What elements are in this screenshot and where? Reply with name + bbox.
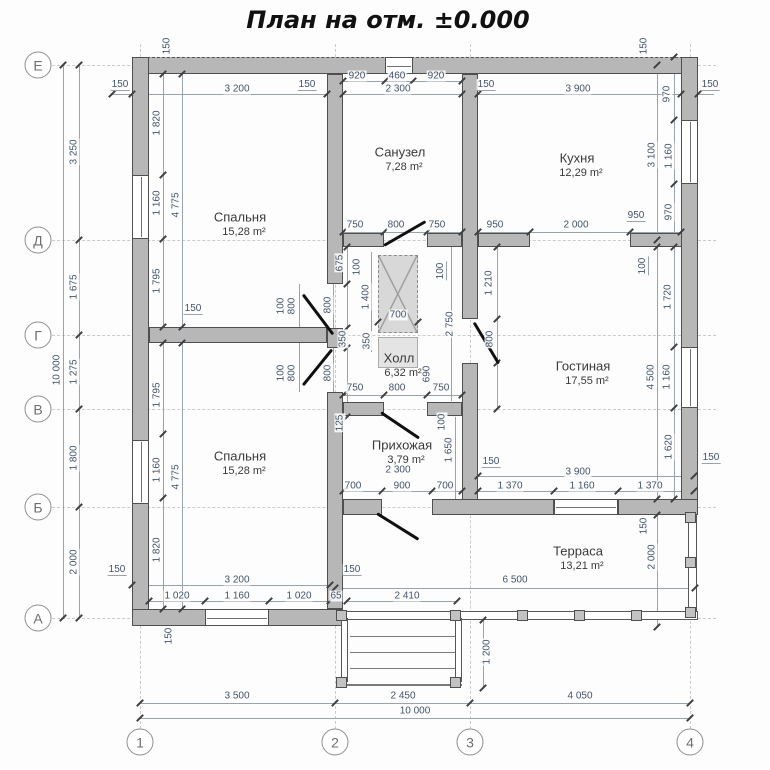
dimension-label: 1 620 [664,433,675,460]
dimension-label: 800 [287,364,298,383]
dimension-label: 4 050 [566,691,593,702]
dimension-label: 700 [344,481,363,492]
dimension-label: 950 [486,220,505,231]
dimension-line [497,247,498,409]
axis-marker-row: А [25,605,52,632]
dimension-label: 2 000 [69,548,80,575]
dimension-label: 150 [162,37,173,56]
dimension-label: 2 300 [384,84,411,95]
axis-marker-row: Г [25,322,52,349]
room-area: 7,28 m² [385,161,422,173]
dimension-label: 1 650 [444,436,455,463]
dimension-tick [479,684,487,692]
railing-post [685,607,696,618]
stair-tread [350,652,455,653]
dimension-label: 800 [323,364,334,383]
dimension-label: 1 795 [152,381,163,408]
wall [432,499,554,515]
stair-hatch [378,255,418,333]
room-name: Спальня [214,210,266,225]
room-name: Терраса [553,544,603,559]
dimension-line [657,247,658,499]
room-area: 3,79 m² [387,454,424,466]
railing-post [631,610,642,621]
axis-marker-col: 1 [127,729,154,756]
dimension-label: 2 750 [445,310,456,337]
dimension-label: 920 [427,71,446,82]
room-name: Санузел [375,145,426,160]
railing-post [685,512,696,523]
room-area: 6,32 m² [384,367,421,379]
dimension-label: 65 [329,591,342,602]
axis-marker-row: Е [25,52,52,79]
dimension-label: 10 000 [399,706,432,717]
dimension-label: 150 [702,452,721,464]
dimension-label: 2 450 [389,691,416,702]
wall [132,57,698,74]
room-area: 15,28 m² [222,226,265,238]
dimension-label: 150 [477,79,496,91]
dimension-label: 800 [387,220,406,231]
wall [149,327,327,343]
wall [462,74,478,319]
railing-post [450,610,461,621]
dimension-label: 750 [346,383,365,394]
dimension-label: 125 [335,414,346,433]
plan-title: План на отм. ±0.000 [246,6,529,34]
dimension-label: 750 [432,383,451,394]
dimension-line [455,417,456,499]
room-area: 15,28 m² [222,465,265,477]
dimension-label: 100 [276,297,287,316]
wall [327,74,343,284]
railing-post [336,610,347,621]
dimension-label: 1 160 [223,591,250,602]
dimension-label: 1 400 [361,283,372,310]
dimension-label: 150 [108,564,127,576]
dimension-label: 1 275 [69,358,80,385]
dimension-label: 3 100 [647,141,658,168]
dimension-label: 1 820 [152,109,163,136]
door-leaf [376,512,419,541]
dimension-line [343,395,462,396]
railing-post [685,557,696,568]
dimension-label: 1 795 [152,267,163,294]
dimension-label: 1 160 [662,363,673,390]
dimension-label: 1 800 [69,444,80,471]
room-name: Холл [384,351,415,366]
room-name: Прихожая [372,438,432,453]
dimension-line [335,588,695,589]
dimension-label: 150 [639,517,650,536]
dimension-label: 4 775 [171,463,182,490]
dimension-label: 3 900 [564,467,591,478]
terrace-railing [341,618,348,682]
dimension-label: 10 000 [52,354,63,387]
dimension-label: 1 160 [664,142,675,169]
dimension-line [140,703,690,704]
dimension-label: 970 [662,85,673,104]
dimension-label: 150 [164,627,175,646]
dimension-label: 1 720 [663,283,674,310]
axis-marker-col: 3 [457,729,484,756]
dimension-label: 3 500 [223,691,250,702]
dimension-label: 1 210 [484,269,495,296]
dimension-label: 1 370 [496,481,523,492]
dimension-label: 750 [428,220,447,231]
window [681,347,698,408]
dimension-label: 800 [323,296,334,315]
room-area: 17,55 m² [565,375,608,387]
dimension-label: 800 [388,383,407,394]
dimension-label: 150 [184,303,203,315]
dimension-tick [653,623,661,631]
railing-post [517,610,528,621]
dimension-label: 900 [393,481,412,492]
dimension-line [140,718,690,719]
dimension-label: 2 410 [393,591,420,602]
stair-tread [350,668,455,669]
window [681,120,698,184]
dimension-label: 6 500 [501,575,528,586]
dimension-label: 100 [435,262,447,281]
dimension-label: 1 200 [482,638,493,665]
dimension-label: 950 [627,210,646,222]
dimension-label: 350 [362,332,373,351]
dimension-label: 100 [637,257,649,276]
dimension-label: 1 160 [152,189,163,216]
window [554,499,618,515]
wall [478,233,530,247]
room-name: Спальня [214,449,266,464]
dimension-label: 100 [276,364,287,383]
axis-marker-col: 2 [322,729,349,756]
dimension-label: 1 160 [568,481,595,492]
dimension-label: 150 [298,79,317,91]
dimension-label: 2 000 [562,220,589,231]
axis-marker-row: Д [25,227,52,254]
room-name: Гостиная [556,359,611,374]
dimension-label: 150 [482,456,501,468]
dimension-label: 700 [389,310,408,321]
dimension-label: 150 [701,79,720,91]
dimension-label: 800 [485,330,496,349]
dimension-label: 1 020 [163,591,190,602]
dimension-label: 350 [338,330,349,349]
dimension-label: 970 [664,203,675,222]
dimension-label: 3 250 [69,138,80,165]
dimension-label: 750 [346,220,365,231]
dimension-label: 675 [335,254,346,273]
dimension-label: 1 020 [285,591,312,602]
window [132,440,149,504]
dimension-label: 700 [436,481,455,492]
door-leaf [380,411,420,439]
dimension-label: 1 160 [152,456,163,483]
axis-marker-col: 4 [677,729,704,756]
dimension-label: 150 [639,37,650,56]
room-name: Кухня [560,151,595,166]
dimension-label: 150 [111,79,130,91]
railing-post [574,610,585,621]
dimension-tick [453,597,461,605]
axis-marker-row: В [25,396,52,423]
dimension-label: 1 675 [69,273,80,300]
dimension-label: 3 200 [223,575,250,586]
dimension-label: 800 [287,297,298,316]
wall [427,233,462,247]
room-area: 13,21 m² [560,560,603,572]
room-area: 12,29 m² [559,167,602,179]
dimension-line [63,65,64,618]
floor-plan: План на отм. ±0.000 1503 200150920460920… [0,0,770,770]
terrace-railing [455,618,462,682]
dimension-label: 690 [422,365,433,384]
dimension-label: 4 500 [646,363,657,390]
dimension-label: 2 300 [384,465,411,476]
dimension-line [112,94,714,95]
dimension-label: 460 [388,71,407,82]
dimension-label: 3 900 [564,84,591,95]
dimension-label: 100 [437,413,448,432]
stair-tread [341,684,462,686]
dimension-label: 920 [348,71,367,82]
dimension-label: 150 [343,564,362,576]
dimension-label: 4 775 [171,191,182,218]
dimension-label: 1 370 [636,481,663,492]
railing-post [450,677,461,688]
dimension-label: 100 [352,258,363,277]
axis-marker-row: Б [25,494,52,521]
window [205,609,269,626]
window [132,175,149,239]
wall [132,57,149,626]
dimension-label: 3 200 [223,84,250,95]
railing-post [336,677,347,688]
dimension-label: 1 820 [152,536,163,563]
stair-tread [350,636,455,637]
dimension-label: 2 000 [647,543,658,570]
